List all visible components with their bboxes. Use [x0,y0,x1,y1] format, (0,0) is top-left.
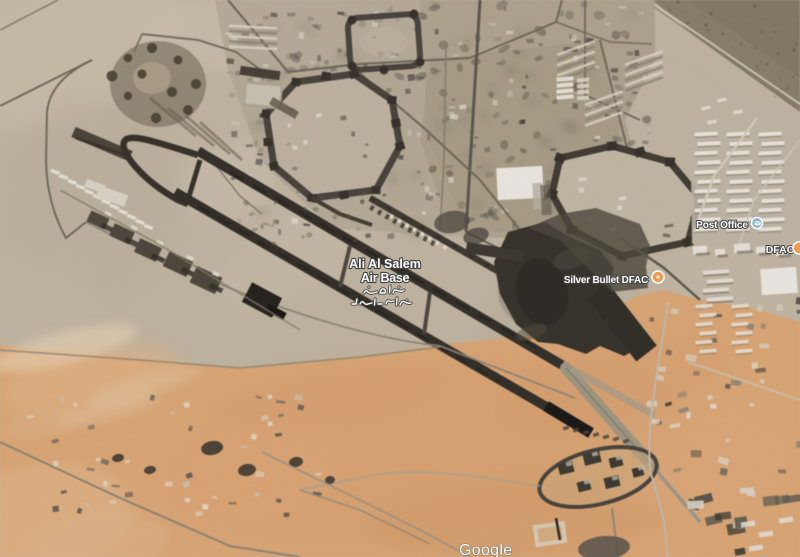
svg-text:Silver Bullet DFAC: Silver Bullet DFAC [564,275,648,286]
svg-text:DFAC: DFAC [766,244,795,256]
svg-text:Ali Al Salem: Ali Al Salem [349,257,421,271]
svg-text:Post Office: Post Office [696,220,748,231]
svg-text:Google: Google [459,542,512,557]
svg-text:Air Base: Air Base [361,271,410,285]
